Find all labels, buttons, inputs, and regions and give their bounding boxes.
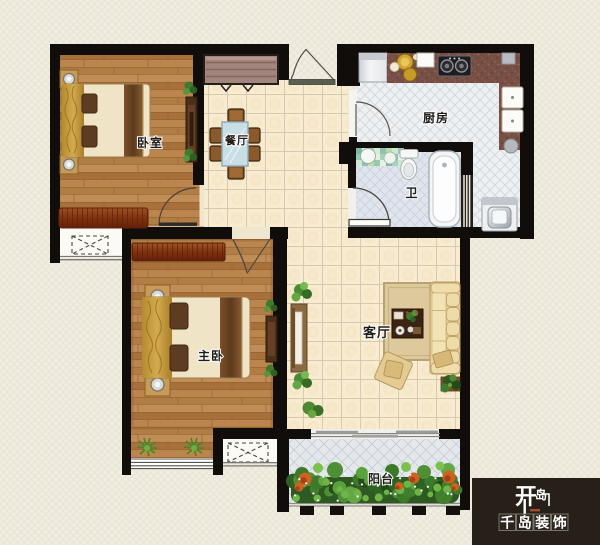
svg-text:卫: 卫 <box>405 186 418 200</box>
svg-text:卧室: 卧室 <box>137 135 163 150</box>
svg-text:装: 装 <box>534 515 550 531</box>
svg-text:饰: 饰 <box>553 515 567 531</box>
svg-text:阳台: 阳台 <box>368 471 394 486</box>
svg-text:厨房: 厨房 <box>423 110 449 125</box>
svg-text:客厅: 客厅 <box>363 325 391 340</box>
svg-text:千: 千 <box>500 515 514 531</box>
svg-text:主卧: 主卧 <box>198 348 224 363</box>
svg-text:开: 开 <box>515 484 537 509</box>
svg-text:岛: 岛 <box>518 515 532 531</box>
svg-text:餐厅: 餐厅 <box>224 133 249 147</box>
